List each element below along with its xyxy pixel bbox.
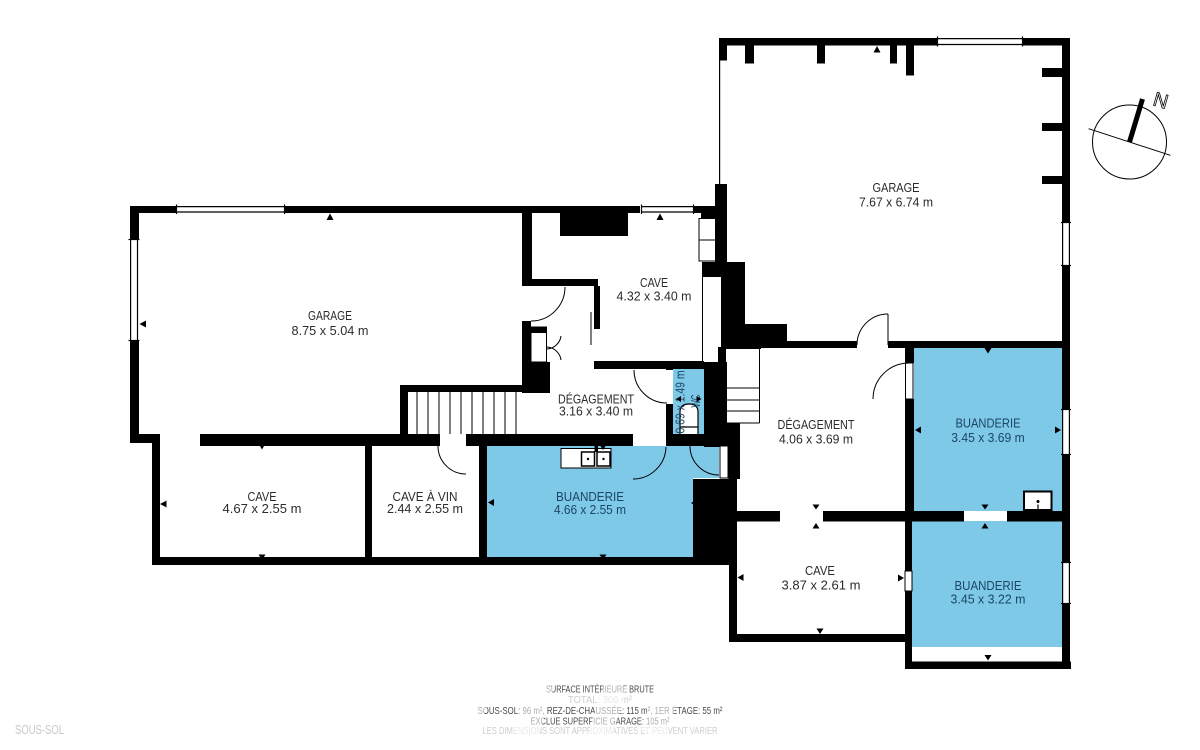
- svg-text:CAVE: CAVE: [805, 564, 835, 578]
- svg-text:SURFACE INTÉRIEURE BRUTE: SURFACE INTÉRIEURE BRUTE: [546, 683, 654, 696]
- svg-text:SOUS-SOL: SOUS-SOL: [15, 723, 64, 737]
- svg-text:GARAGE: GARAGE: [308, 309, 352, 323]
- svg-text:3.87 x 2.61 m: 3.87 x 2.61 m: [782, 579, 861, 593]
- svg-text:WC: WC: [689, 395, 703, 408]
- svg-text:BUANDERIE: BUANDERIE: [955, 579, 1022, 593]
- svg-text:0.69 x 1.49 m: 0.69 x 1.49 m: [674, 371, 688, 434]
- svg-text:3.45 x 3.69 m: 3.45 x 3.69 m: [951, 431, 1025, 445]
- svg-text:4.06 x 3.69 m: 4.06 x 3.69 m: [779, 433, 853, 447]
- svg-text:8.75 x 5.04 m: 8.75 x 5.04 m: [292, 324, 369, 338]
- svg-text:2.44 x 2.55 m: 2.44 x 2.55 m: [387, 502, 463, 516]
- svg-text:4.67 x 2.55 m: 4.67 x 2.55 m: [223, 502, 302, 516]
- svg-text:4.32 x 3.40 m: 4.32 x 3.40 m: [617, 290, 692, 304]
- svg-text:GARAGE: GARAGE: [873, 181, 920, 195]
- svg-text:3.16 x 3.40 m: 3.16 x 3.40 m: [559, 405, 633, 419]
- svg-text:CAVE: CAVE: [640, 276, 668, 290]
- svg-text:7.67 x 6.74 m: 7.67 x 6.74 m: [859, 196, 933, 210]
- svg-text:4.66 x 2.55 m: 4.66 x 2.55 m: [554, 503, 626, 517]
- svg-text:BUANDERIE: BUANDERIE: [956, 417, 1021, 431]
- svg-text:BUANDERIE: BUANDERIE: [556, 490, 624, 504]
- svg-text:DÉGAGEMENT: DÉGAGEMENT: [778, 417, 855, 432]
- svg-text:3.45 x 3.22 m: 3.45 x 3.22 m: [951, 593, 1026, 607]
